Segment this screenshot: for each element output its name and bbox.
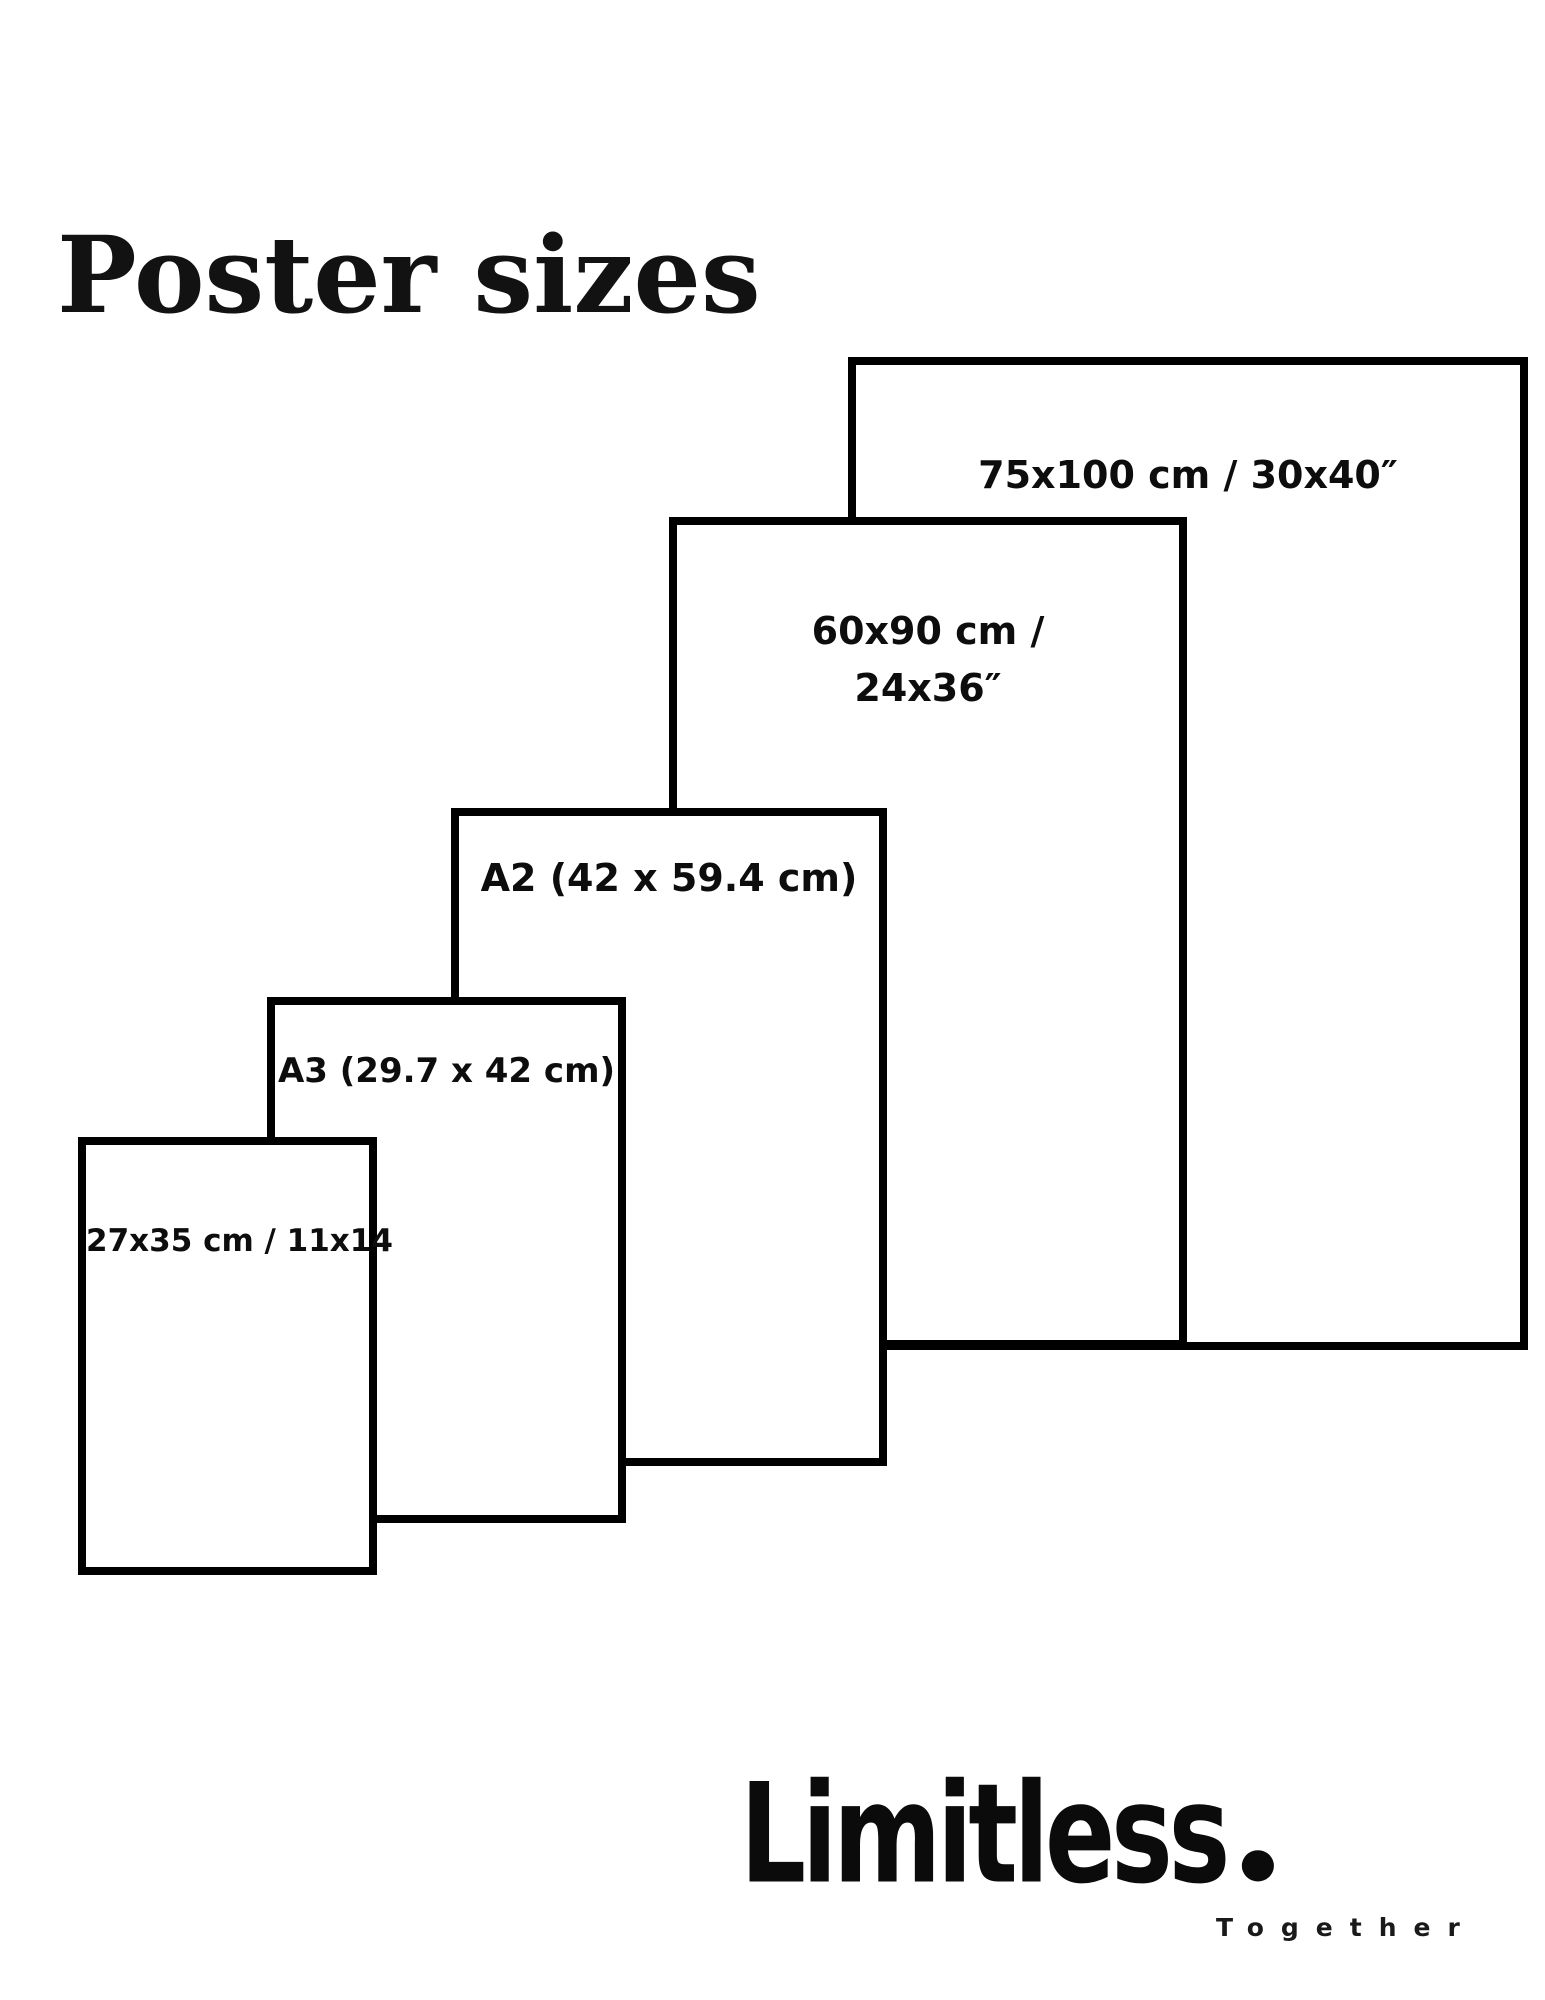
poster-label-a3: A3 (29.7 x 42 cm) [275,1051,618,1091]
poster-label-a3-line: A3 (29.7 x 42 cm) [275,1051,618,1091]
brand-logo: Limitless [740,1765,1274,1903]
poster-label-60x90-line1: 60x90 cm / [677,603,1179,660]
poster-label-a2-line: A2 (42 x 59.4 cm) [459,856,879,900]
poster-label-a2: A2 (42 x 59.4 cm) [459,856,879,900]
poster-label-60x90: 60x90 cm / 24x36″ [677,603,1179,717]
brand-dot-icon [1242,1850,1274,1881]
poster-label-75x100: 75x100 cm / 30x40″ [856,453,1520,497]
poster-label-27x35: 27x35 cm / 11x14 [86,1223,369,1259]
poster-label-60x90-line2: 24x36″ [677,660,1179,717]
poster-sizes-page: Poster sizes 75x100 cm / 30x40″ 60x90 cm… [0,0,1545,2000]
poster-label-27x35-line: 27x35 cm / 11x14 [86,1223,369,1259]
brand-name: Limitless [740,1754,1226,1914]
page-title: Poster sizes [57,222,761,328]
brand-tagline: Together [1216,1913,1477,1942]
poster-label-75x100-line: 75x100 cm / 30x40″ [856,453,1520,497]
poster-rect-27x35: 27x35 cm / 11x14 [78,1137,377,1575]
